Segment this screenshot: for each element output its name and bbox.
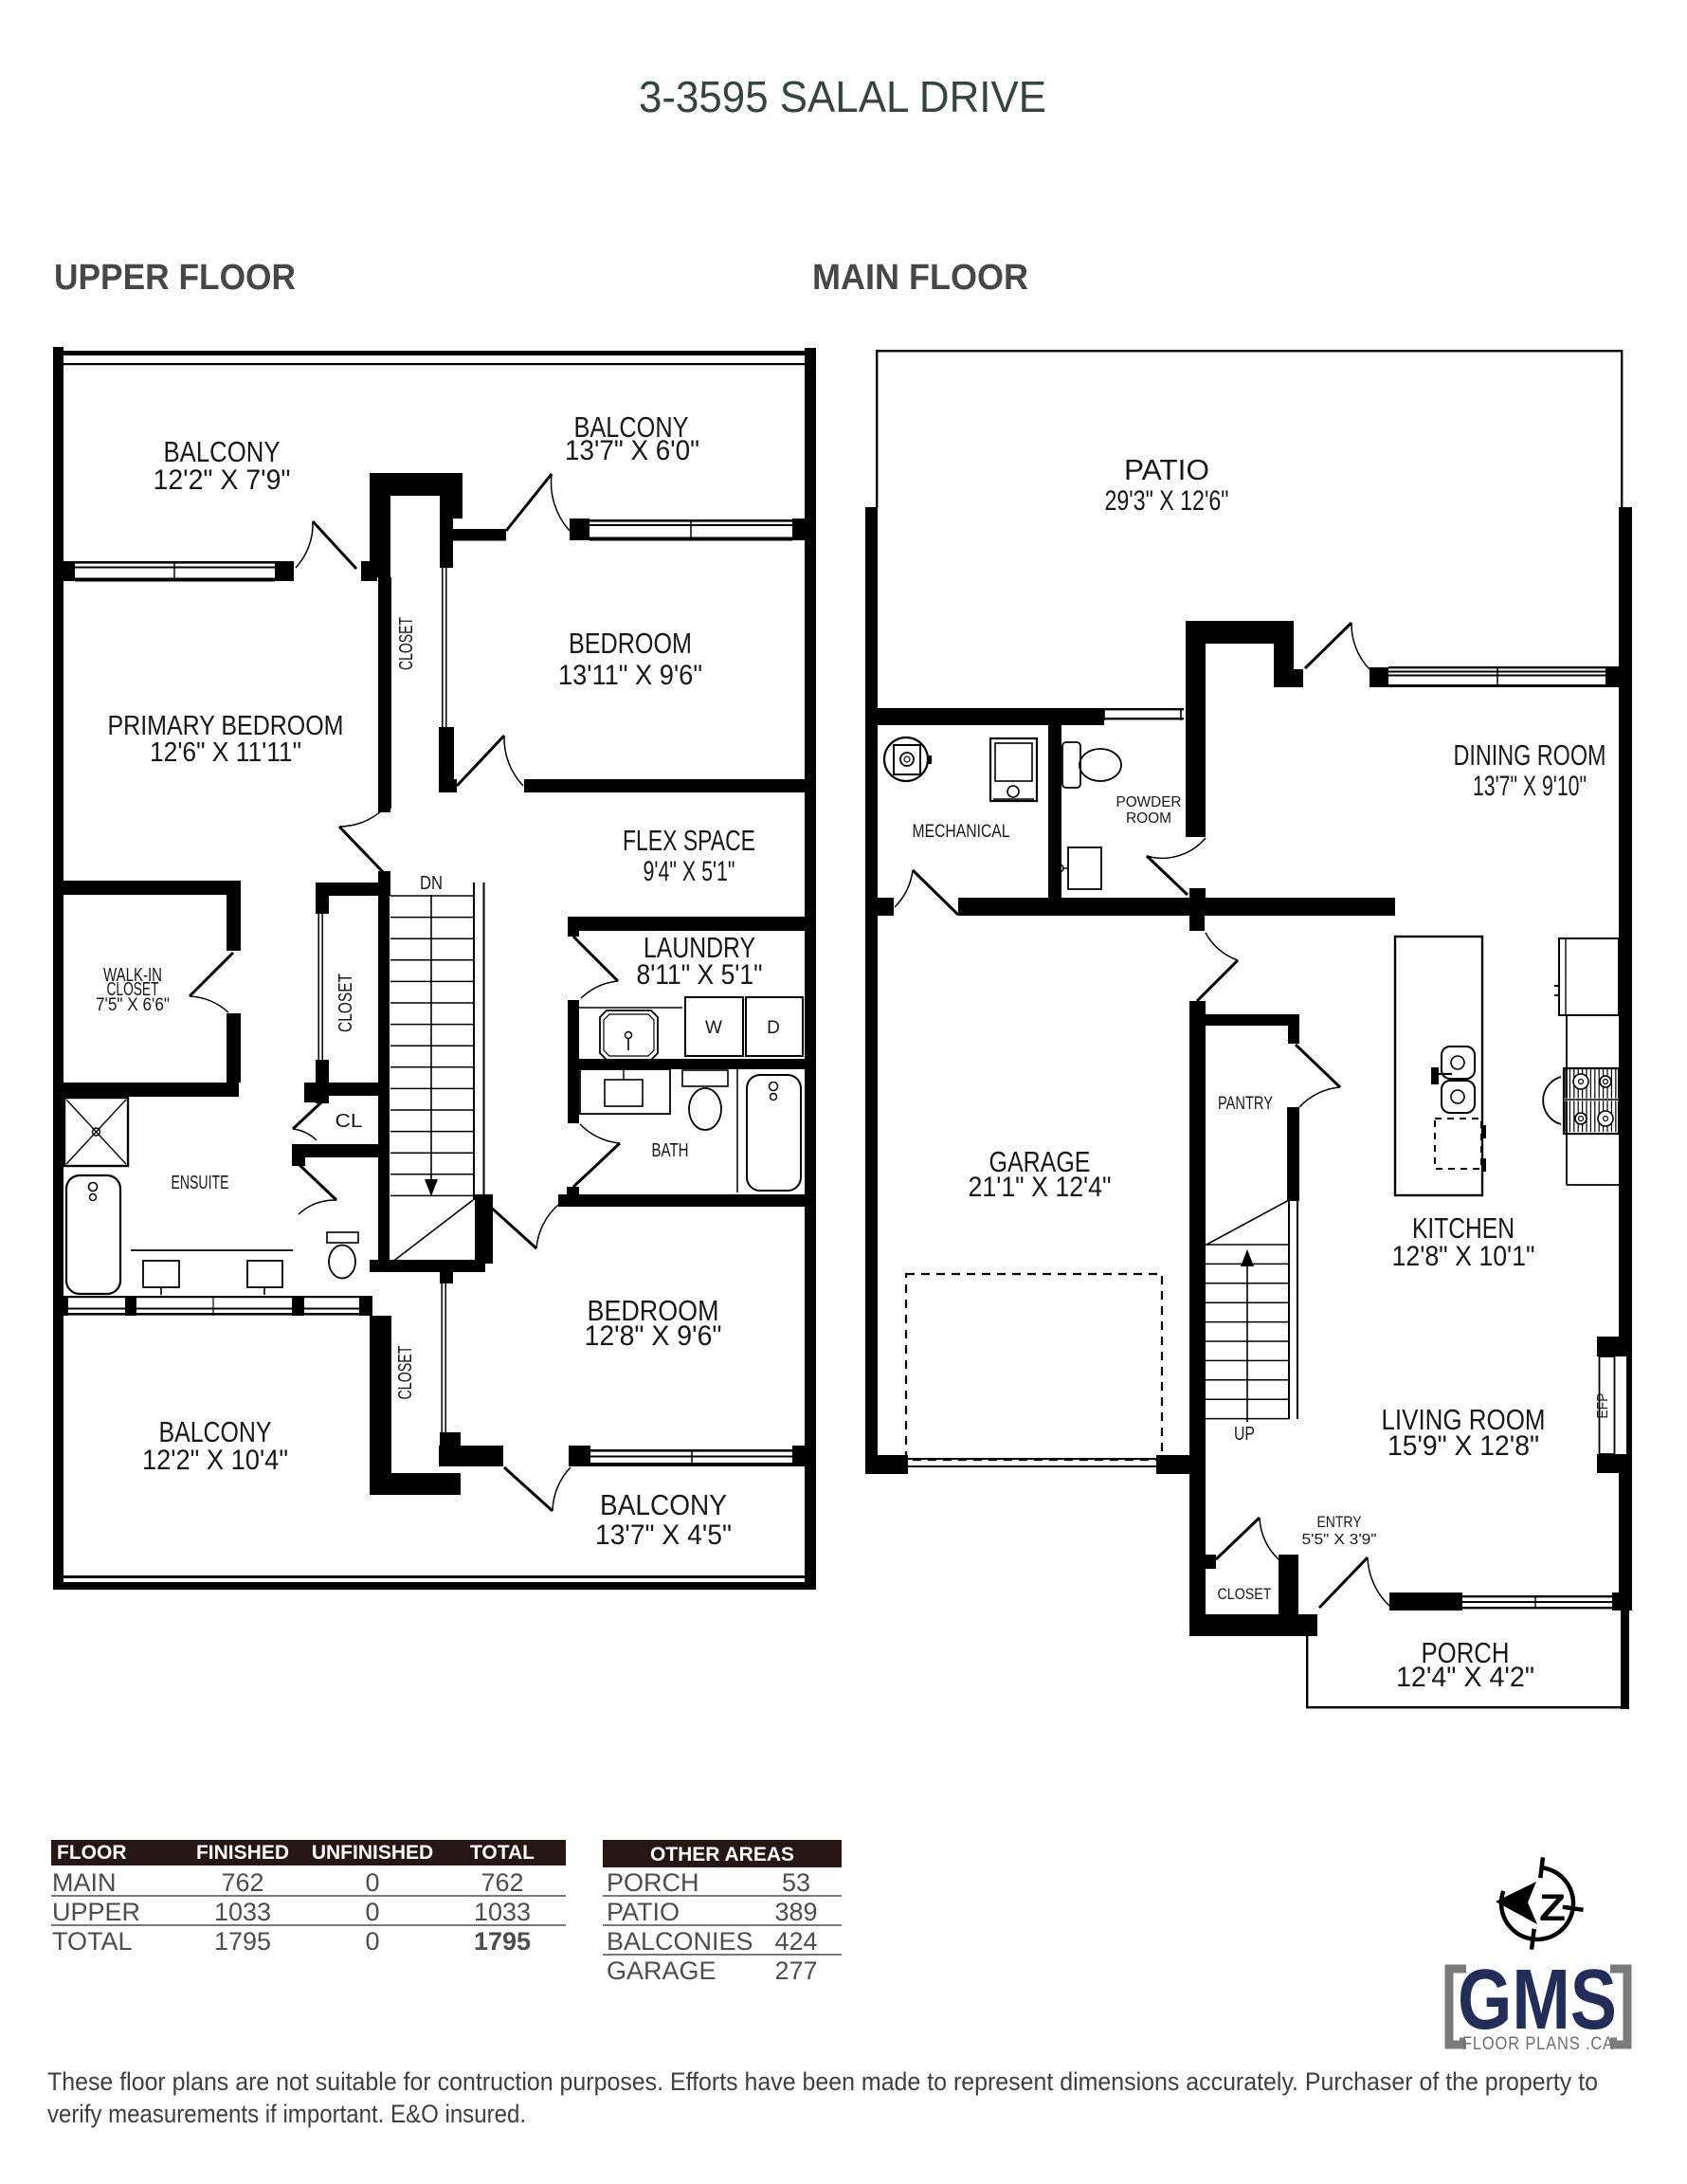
svg-text:MAIN: MAIN — [52, 1868, 117, 1897]
svg-text:CLOSET: CLOSET — [396, 617, 417, 670]
svg-text:762: 762 — [221, 1868, 263, 1897]
svg-text:UP: UP — [1234, 1424, 1255, 1445]
svg-text:12'6" X 11'11": 12'6" X 11'11" — [150, 737, 301, 768]
svg-text:UPPER: UPPER — [52, 1898, 140, 1926]
svg-text:0: 0 — [365, 1868, 379, 1897]
svg-text:BATH: BATH — [652, 1140, 689, 1161]
svg-text:PATIO: PATIO — [607, 1898, 680, 1926]
svg-text:53: 53 — [782, 1868, 810, 1897]
svg-text:MECHANICAL: MECHANICAL — [913, 822, 1010, 842]
svg-text:CLOSET: CLOSET — [395, 1346, 416, 1400]
svg-text:PANTRY: PANTRY — [1218, 1094, 1273, 1114]
svg-text:TOTAL: TOTAL — [52, 1927, 133, 1956]
svg-text:GARAGE: GARAGE — [607, 1956, 717, 1985]
svg-text:EFP: EFP — [1595, 1393, 1611, 1419]
svg-text:POWDER: POWDER — [1116, 794, 1182, 810]
svg-text:8'11" X 5'1": 8'11" X 5'1" — [637, 959, 763, 991]
svg-text:PATIO: PATIO — [1124, 453, 1209, 486]
svg-text:BALCONY: BALCONY — [159, 1415, 272, 1448]
svg-text:GMS: GMS — [1458, 1953, 1617, 2047]
svg-text:BALCONIES: BALCONIES — [607, 1927, 753, 1956]
svg-text:389: 389 — [774, 1898, 817, 1926]
svg-text:BALCONY: BALCONY — [600, 1488, 727, 1521]
svg-text:12'4" X 4'2": 12'4" X 4'2" — [1396, 1662, 1534, 1693]
svg-text:CLOSET: CLOSET — [1218, 1585, 1272, 1603]
svg-text:3-3595 SALAL DRIVE: 3-3595 SALAL DRIVE — [639, 72, 1046, 121]
svg-text:FLOOR: FLOOR — [57, 1842, 127, 1864]
svg-text:0: 0 — [365, 1927, 379, 1956]
svg-text:1795: 1795 — [214, 1927, 271, 1956]
svg-text:CL: CL — [336, 1111, 363, 1132]
svg-text:13'11" X 9'6": 13'11" X 9'6" — [558, 660, 702, 691]
svg-text:7'5" X 6'6": 7'5" X 6'6" — [96, 995, 170, 1015]
svg-text:D: D — [767, 1018, 780, 1038]
svg-text:ENTRY: ENTRY — [1317, 1513, 1362, 1531]
svg-text:These floor plans are not suit: These floor plans are not suitable for c… — [47, 2067, 1598, 2096]
svg-text:BALCONY: BALCONY — [164, 435, 281, 468]
svg-text:CLOSET: CLOSET — [336, 974, 356, 1032]
svg-text:29'3" X 12'6": 29'3" X 12'6" — [1105, 485, 1229, 517]
svg-text:verify measurements if importa: verify measurements if important. E&O in… — [47, 2100, 526, 2128]
svg-text:13'7" X 6'0": 13'7" X 6'0" — [565, 435, 699, 466]
svg-text:21'1" X 12'4": 21'1" X 12'4" — [969, 1172, 1112, 1203]
svg-text:12'2" X 7'9": 12'2" X 7'9" — [154, 464, 291, 496]
svg-text:KITCHEN: KITCHEN — [1412, 1211, 1515, 1245]
svg-text:OTHER AREAS: OTHER AREAS — [650, 1844, 794, 1865]
svg-text:13'7" X 4'5": 13'7" X 4'5" — [595, 1520, 732, 1551]
svg-text:277: 277 — [774, 1956, 817, 1985]
svg-text:Z: Z — [1539, 1887, 1566, 1929]
svg-text:ENSUITE: ENSUITE — [172, 1173, 229, 1193]
svg-text:UNFINISHED: UNFINISHED — [312, 1842, 433, 1864]
svg-text:FLOOR PLANS .CA: FLOOR PLANS .CA — [1462, 2034, 1614, 2054]
svg-text:762: 762 — [481, 1868, 523, 1897]
svg-text:FLEX SPACE: FLEX SPACE — [623, 824, 755, 857]
svg-text:12'8" X 9'6": 12'8" X 9'6" — [585, 1320, 722, 1352]
svg-text:0: 0 — [365, 1898, 379, 1926]
svg-text:UPPER FLOOR: UPPER FLOOR — [54, 258, 296, 298]
svg-text:12'2" X 10'4": 12'2" X 10'4" — [142, 1445, 288, 1476]
svg-text:1033: 1033 — [474, 1898, 531, 1926]
svg-text:5'5" X 3'9": 5'5" X 3'9" — [1302, 1532, 1377, 1548]
svg-text:PORCH: PORCH — [607, 1868, 699, 1897]
svg-text:12'8" X 10'1": 12'8" X 10'1" — [1392, 1241, 1535, 1272]
svg-text:1795: 1795 — [474, 1927, 531, 1956]
svg-text:13'7" X 9'10": 13'7" X 9'10" — [1473, 771, 1587, 802]
svg-text:ROOM: ROOM — [1126, 810, 1171, 827]
svg-text:DINING ROOM: DINING ROOM — [1454, 738, 1606, 772]
svg-text:424: 424 — [774, 1927, 817, 1956]
svg-text:W: W — [705, 1018, 722, 1038]
svg-text:DN: DN — [420, 873, 443, 894]
svg-text:MAIN FLOOR: MAIN FLOOR — [812, 258, 1028, 298]
svg-text:1033: 1033 — [214, 1898, 271, 1926]
svg-text:15'9" X 12'8": 15'9" X 12'8" — [1388, 1430, 1539, 1462]
svg-text:FINISHED: FINISHED — [196, 1842, 289, 1864]
svg-text:9'4" X 5'1": 9'4" X 5'1" — [644, 856, 735, 887]
svg-text:BEDROOM: BEDROOM — [569, 627, 692, 660]
svg-text:TOTAL: TOTAL — [470, 1842, 535, 1864]
